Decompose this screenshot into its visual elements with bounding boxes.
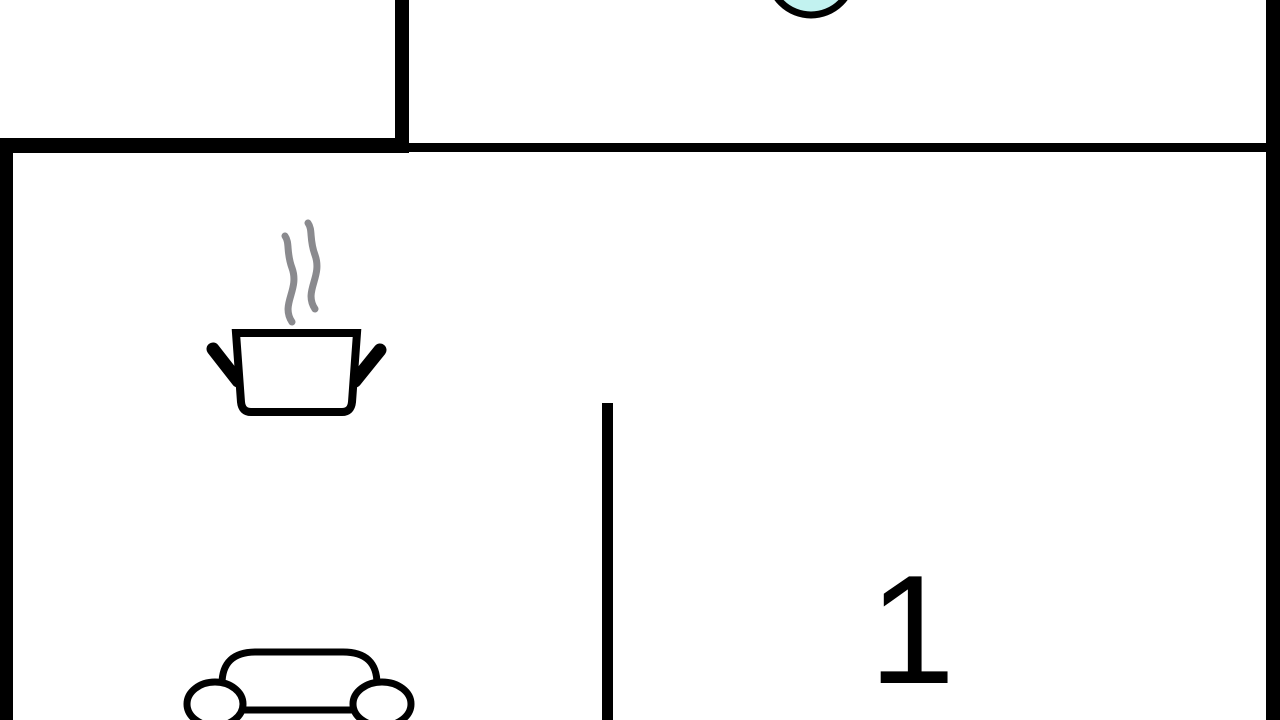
wall-vertical-top (395, 0, 409, 153)
wall-right (1266, 0, 1280, 720)
car-wheel-right (353, 682, 411, 720)
pot-body (236, 333, 357, 412)
wall-horizontal-right (409, 143, 1280, 152)
floorplan-background (0, 0, 1280, 720)
wall-partition-interior (602, 403, 613, 720)
floorplan: 1 (0, 0, 1280, 720)
wall-horizontal-left (0, 138, 409, 153)
car-wheel-left (187, 682, 243, 720)
wall-left (0, 138, 13, 720)
room-label-1: 1 (869, 543, 955, 716)
floorplan-canvas: 1 (0, 0, 1280, 720)
